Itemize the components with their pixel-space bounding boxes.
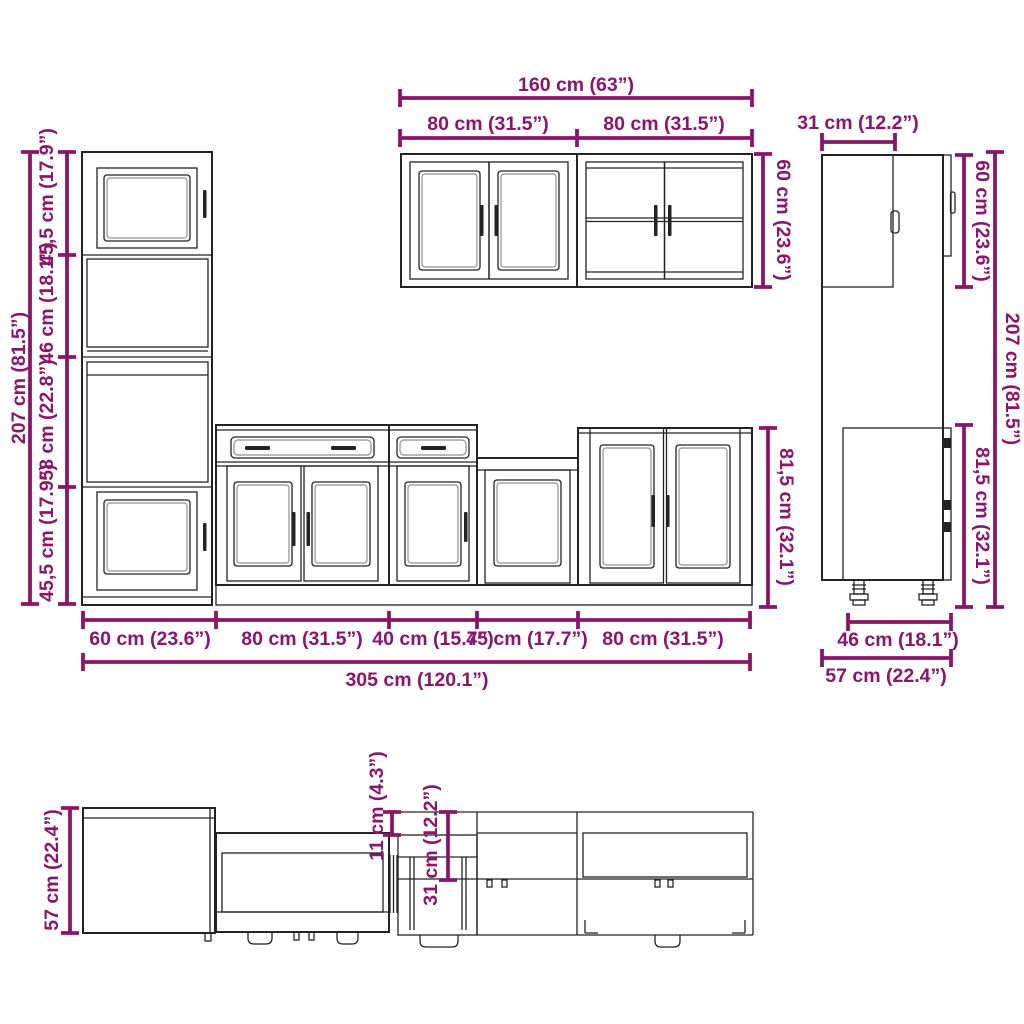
- dim-label-side-wall-depth: 31 cm (12.2”): [797, 112, 918, 134]
- kitchen-dimension-diagram: 207 cm (81.5”) 45,5 cm (17.9”) 46 cm (18…: [0, 0, 1024, 1024]
- door-handle: [652, 495, 656, 527]
- dim-label-plan-wall-depth: 31 cm (12.2”): [420, 784, 442, 905]
- dim-label-base-width-2: 80 cm (31.5”): [241, 628, 362, 650]
- dim-label-tall-section-2: 46 cm (18.1”): [36, 242, 58, 363]
- drawer-handle: [421, 446, 446, 450]
- door-handle: [307, 512, 311, 546]
- dim-label-tall-total: 207 cm (81.5”): [8, 312, 30, 444]
- door-handle: [464, 512, 468, 542]
- dim-label-tall-section-4: 45,5 cm (17.9”): [36, 464, 58, 602]
- door-handle: [495, 205, 499, 236]
- dim-label-plan-depth: 57 cm (22.4”): [41, 809, 63, 930]
- door-handle: [668, 205, 672, 236]
- dim-label-side-wall-height: 60 cm (23.6”): [971, 160, 993, 281]
- door-handle: [292, 512, 296, 546]
- dim-label-wall-right-width: 80 cm (31.5”): [603, 113, 724, 135]
- dim-label-base-width-5: 80 cm (31.5”): [602, 628, 723, 650]
- dim-label-wall-total-width: 160 cm (63”): [518, 74, 634, 96]
- dim-label-side-total-height: 207 cm (81.5”): [1001, 313, 1023, 445]
- door-handle: [203, 523, 207, 551]
- dim-label-base-width-4: 45 cm (17.7”): [466, 628, 587, 650]
- door-handle: [666, 495, 670, 527]
- dim-label-wall-left-width: 80 cm (31.5”): [427, 113, 548, 135]
- diagram-svg: 207 cm (81.5”) 45,5 cm (17.9”) 46 cm (18…: [0, 0, 1024, 1024]
- dim-label-wall-height: 60 cm (23.6”): [772, 159, 794, 280]
- door-handle: [654, 205, 658, 236]
- dim-label-side-base-depth: 46 cm (18.1”): [837, 629, 958, 651]
- dim-label-side-base-height: 81,5 cm (32.1”): [971, 447, 993, 585]
- dim-label-tall-section-3: 58 cm (22.8”): [36, 359, 58, 480]
- hinge: [943, 438, 951, 448]
- drawer-handle: [245, 446, 270, 450]
- dim-label-side-total-depth: 57 cm (22.4”): [825, 665, 946, 687]
- drawer-handle: [331, 446, 356, 450]
- dim-label-base-total-width: 305 cm (120.1”): [345, 669, 488, 691]
- dim-label-plan-overhang: 11 cm (4.3”): [366, 751, 388, 860]
- dim-label-base-width-1: 60 cm (23.6”): [89, 628, 210, 650]
- door-handle: [203, 190, 207, 218]
- hinge: [943, 500, 951, 510]
- door-handle: [480, 205, 484, 236]
- dim-label-base-height: 81,5 cm (32.1”): [775, 448, 797, 586]
- hinge: [943, 522, 951, 532]
